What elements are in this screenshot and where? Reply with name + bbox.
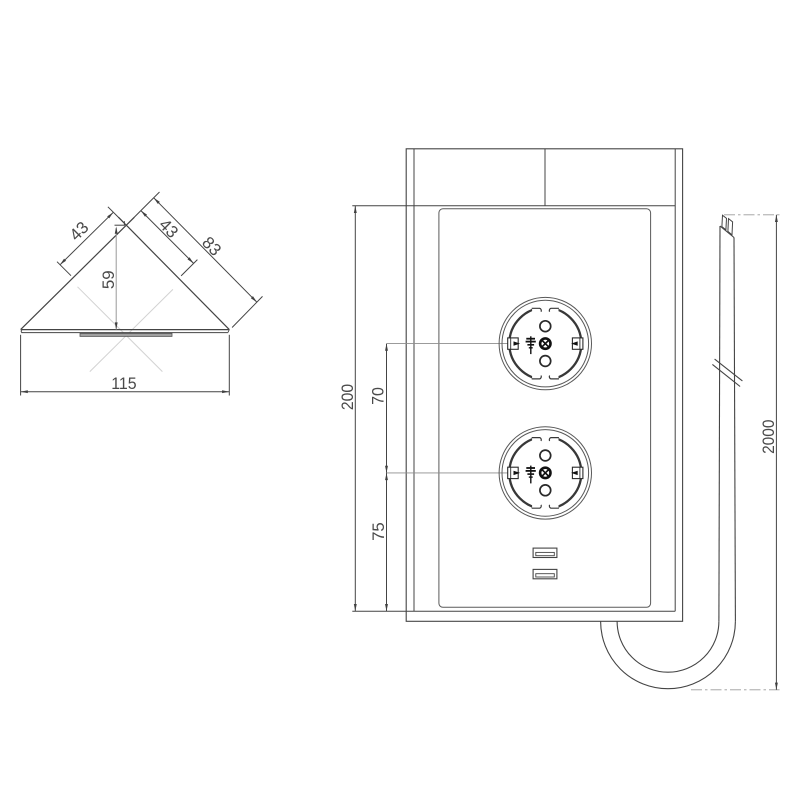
svg-text:200: 200 [338,384,357,410]
svg-text:75: 75 [369,522,388,541]
svg-text:70: 70 [368,387,387,405]
svg-text:59: 59 [99,270,118,289]
svg-text:115: 115 [111,374,136,393]
svg-text:2000: 2000 [759,420,778,454]
